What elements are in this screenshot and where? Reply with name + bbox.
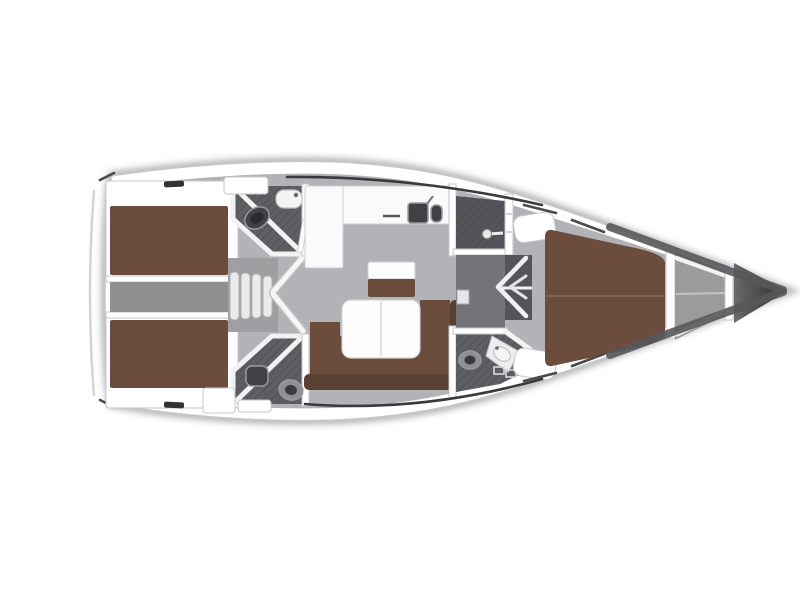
shower-head-icon xyxy=(482,229,491,238)
deck-hatch xyxy=(164,180,184,187)
shower-wall-bottom xyxy=(453,249,512,255)
basin-faucet xyxy=(495,346,499,350)
deck-hatch xyxy=(164,401,184,408)
companionway-step xyxy=(252,274,261,318)
shower-wall-right xyxy=(505,194,513,255)
heads-wall-right xyxy=(302,334,309,406)
double-berth xyxy=(110,320,228,388)
floor-plan-canvas: Sailing yacht interior layout plan — top… xyxy=(0,0,800,600)
transom-line xyxy=(90,190,94,396)
forepeak-centerline xyxy=(676,293,726,294)
galley-sink-main xyxy=(408,203,428,223)
forward-bulkhead xyxy=(666,250,675,338)
engine-corridor xyxy=(106,276,238,318)
deck-locker-bottom xyxy=(203,388,235,413)
corridor-wall-top xyxy=(106,276,238,282)
deck-locker-top xyxy=(224,177,268,194)
heads-wall-top xyxy=(453,328,507,334)
basin-faucet xyxy=(294,193,298,197)
washbasin-dark xyxy=(246,366,268,386)
shower-room xyxy=(453,194,513,255)
aft-cabin-port xyxy=(106,181,238,281)
shower-floor-grating xyxy=(456,196,505,249)
double-berth xyxy=(110,206,228,275)
companionway-step xyxy=(241,273,250,319)
deck-step-bottom xyxy=(238,400,271,412)
toilet-bowl xyxy=(465,356,476,365)
washbasin xyxy=(276,190,302,208)
corridor-floor xyxy=(110,282,234,312)
saloon-wall-upper xyxy=(449,184,456,256)
sofa-backrest-bottom xyxy=(304,374,464,390)
corridor-wall-bottom xyxy=(106,312,238,318)
floor-hatch xyxy=(457,290,469,304)
galley-sink-small xyxy=(431,205,442,222)
seat-chest-base xyxy=(368,279,415,297)
seat-chest-top xyxy=(368,262,415,279)
forward-passage xyxy=(456,255,532,330)
saloon-wall-lower xyxy=(449,326,456,398)
companionway-step xyxy=(230,272,239,320)
galley-counter-return xyxy=(305,186,343,268)
yacht-floor-plan: Sailing yacht interior layout plan — top… xyxy=(0,0,800,600)
